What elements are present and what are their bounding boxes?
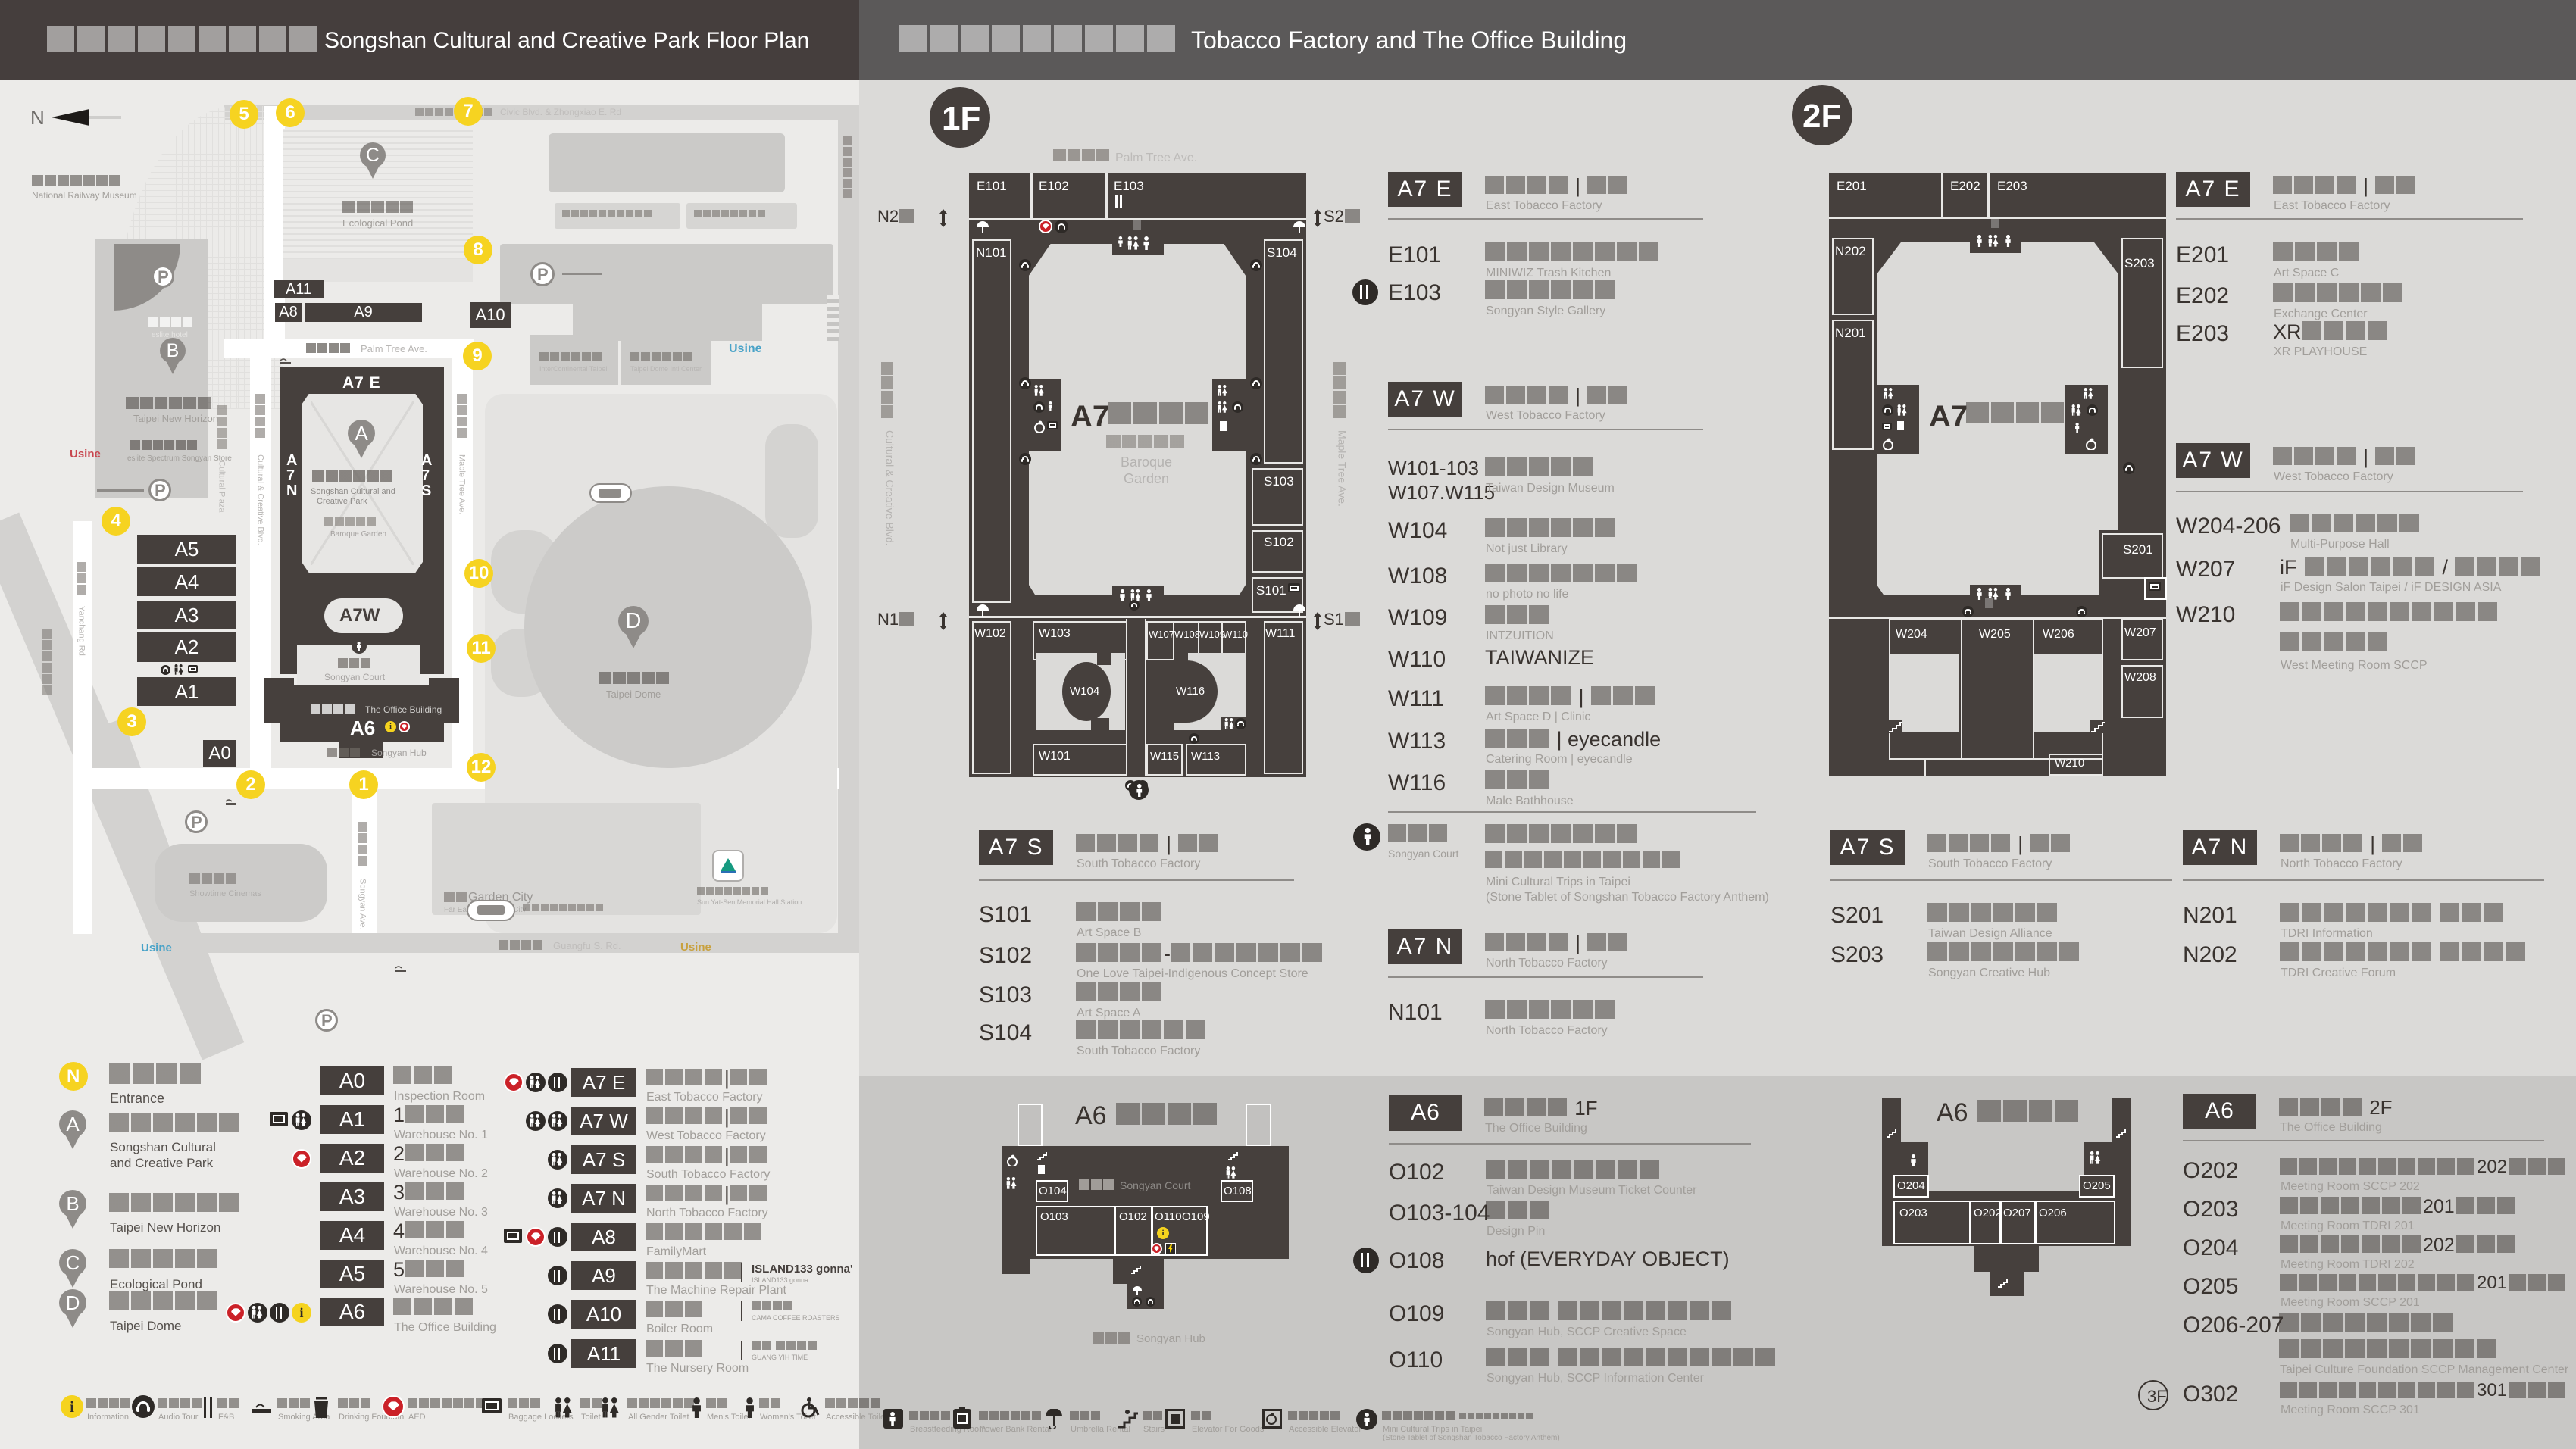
svg-text:N: N xyxy=(30,106,45,129)
